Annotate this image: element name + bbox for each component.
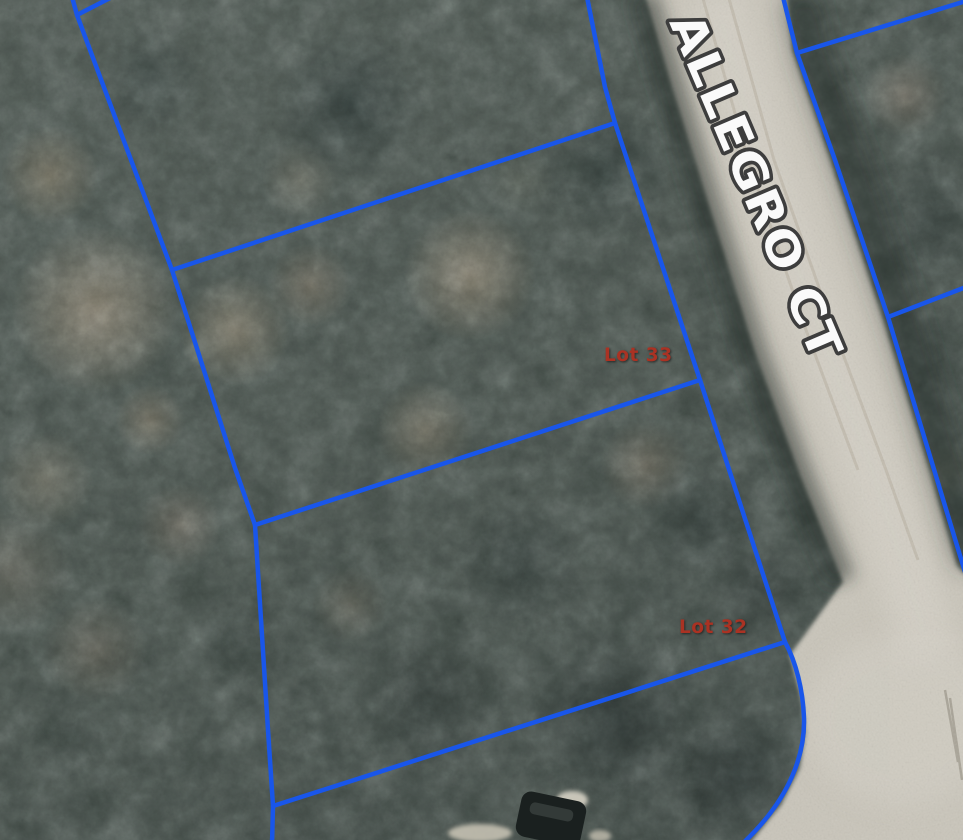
bottom-details xyxy=(448,790,611,840)
small-light-patch xyxy=(589,830,611,840)
rear-boundary-line xyxy=(72,0,273,840)
lot-33-label: Lot 33 xyxy=(604,345,673,366)
lot33-lot32-boundary-line xyxy=(255,380,700,525)
aerial-map: Lot 33 Lot 32 ALLEGRO CT xyxy=(0,0,963,840)
lot32-south-boundary-line xyxy=(273,642,785,806)
north-divider-line xyxy=(77,0,112,15)
lot-32-label: Lot 32 xyxy=(679,617,748,638)
driveway-patch xyxy=(448,824,512,840)
road-allegro-ct xyxy=(580,0,963,840)
lot33-north-boundary-line xyxy=(172,123,615,270)
map-vector-layer: Lot 33 Lot 32 ALLEGRO CT xyxy=(0,0,963,840)
